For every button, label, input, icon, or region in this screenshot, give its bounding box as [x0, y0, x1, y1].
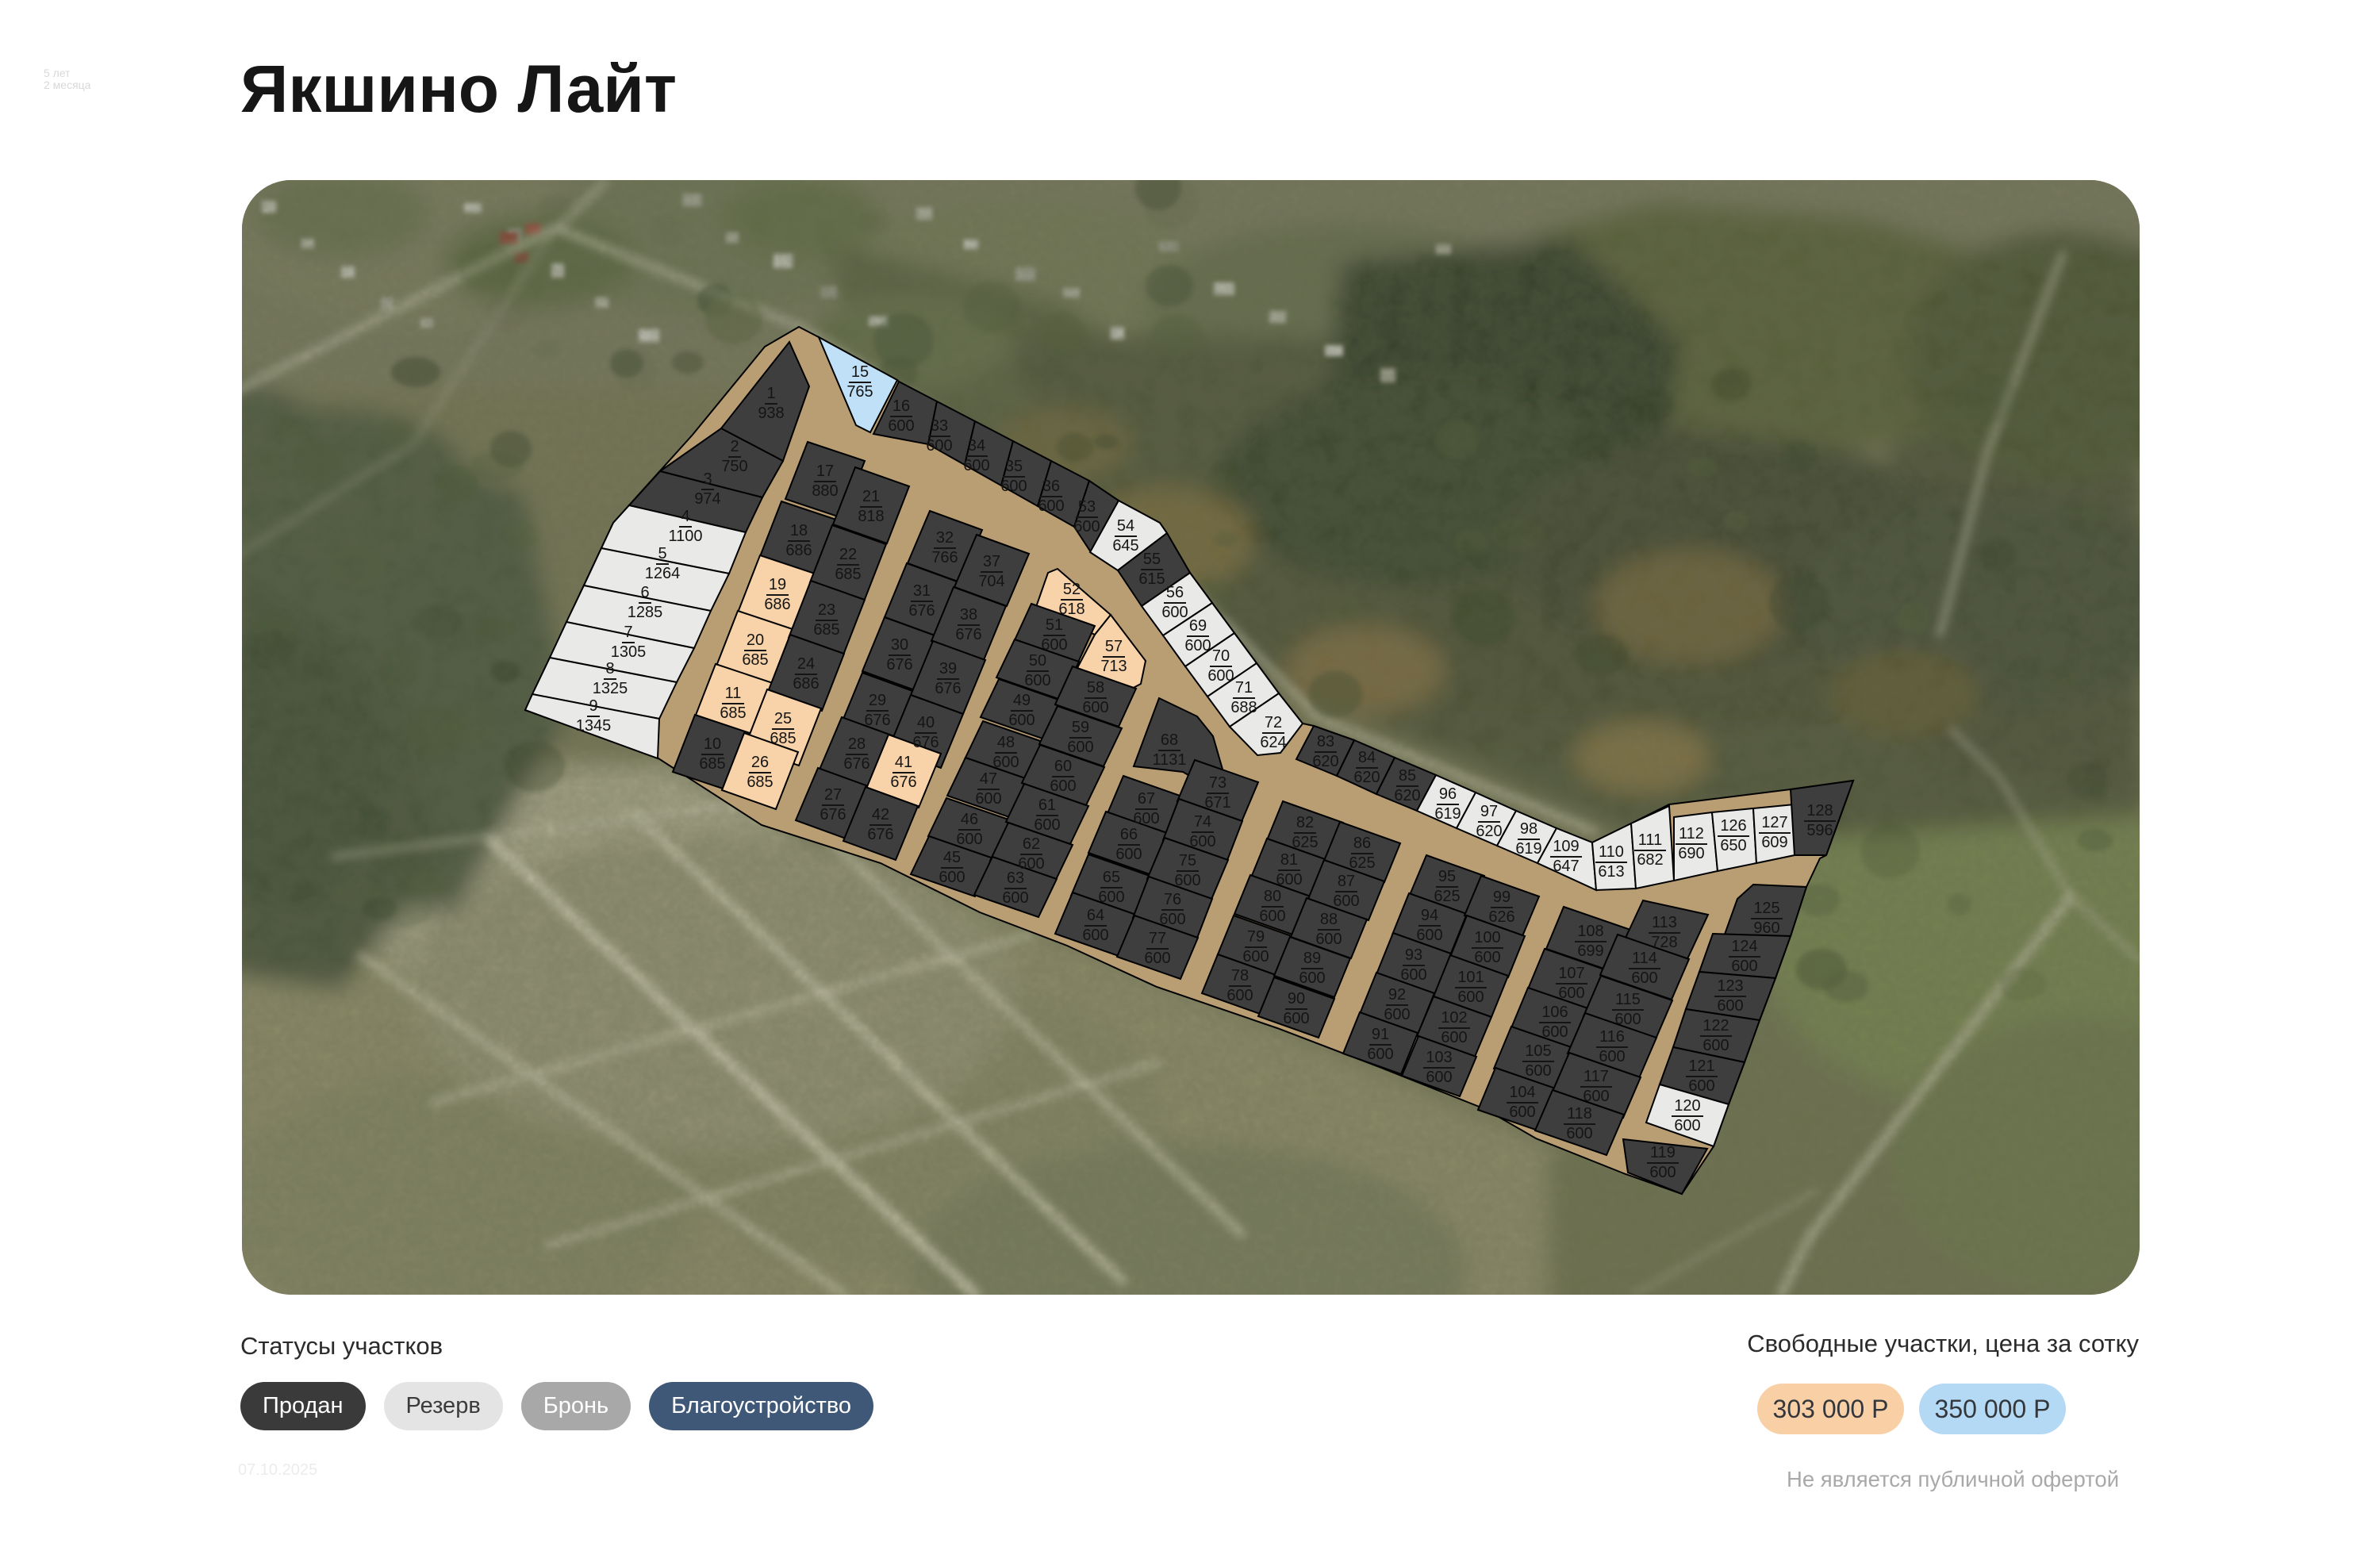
- svg-text:600: 600: [963, 457, 989, 474]
- svg-text:682: 682: [1637, 851, 1663, 869]
- svg-text:625: 625: [1434, 888, 1460, 905]
- svg-text:686: 686: [785, 542, 812, 559]
- svg-text:39: 39: [939, 660, 957, 677]
- svg-text:676: 676: [843, 755, 869, 773]
- svg-text:90: 90: [1288, 990, 1305, 1008]
- svg-text:685: 685: [742, 651, 768, 669]
- svg-text:620: 620: [1394, 787, 1420, 804]
- svg-text:85: 85: [1399, 767, 1416, 785]
- svg-text:600: 600: [1558, 985, 1584, 1002]
- svg-text:626: 626: [1488, 908, 1514, 926]
- svg-text:67: 67: [1138, 790, 1155, 808]
- svg-text:113: 113: [1652, 914, 1677, 931]
- svg-text:620: 620: [1476, 823, 1502, 840]
- svg-text:1: 1: [766, 385, 775, 402]
- svg-text:600: 600: [1674, 1117, 1700, 1134]
- svg-text:600: 600: [1226, 987, 1253, 1004]
- svg-text:87: 87: [1338, 873, 1355, 890]
- svg-text:38: 38: [960, 606, 977, 624]
- svg-text:92: 92: [1388, 986, 1406, 1004]
- svg-text:618: 618: [1058, 601, 1084, 618]
- svg-text:16: 16: [892, 397, 910, 415]
- svg-text:65: 65: [1103, 869, 1120, 886]
- svg-text:22: 22: [839, 546, 857, 563]
- svg-text:624: 624: [1260, 734, 1286, 751]
- svg-text:750: 750: [721, 458, 747, 475]
- svg-text:600: 600: [1207, 667, 1234, 685]
- svg-text:728: 728: [1651, 934, 1677, 951]
- svg-text:54: 54: [1117, 517, 1134, 535]
- svg-text:600: 600: [1050, 777, 1076, 795]
- svg-text:600: 600: [1115, 846, 1142, 863]
- svg-text:600: 600: [1400, 966, 1426, 984]
- svg-text:121: 121: [1688, 1057, 1714, 1075]
- svg-text:650: 650: [1720, 837, 1746, 854]
- svg-text:115: 115: [1615, 991, 1641, 1008]
- svg-text:600: 600: [1583, 1088, 1609, 1105]
- svg-text:105: 105: [1525, 1042, 1551, 1060]
- svg-text:600: 600: [1041, 636, 1067, 654]
- svg-text:71: 71: [1235, 679, 1253, 697]
- svg-text:600: 600: [1457, 988, 1484, 1006]
- svg-text:713: 713: [1100, 658, 1127, 675]
- svg-text:880: 880: [812, 482, 838, 500]
- svg-text:600: 600: [1159, 911, 1185, 928]
- svg-text:676: 676: [935, 680, 961, 697]
- svg-text:600: 600: [1315, 931, 1342, 948]
- svg-text:127: 127: [1761, 814, 1787, 831]
- svg-text:18: 18: [790, 522, 808, 539]
- svg-text:102: 102: [1441, 1009, 1467, 1027]
- svg-text:600: 600: [1073, 518, 1100, 535]
- svg-text:58: 58: [1087, 679, 1104, 697]
- svg-text:86: 86: [1353, 835, 1371, 852]
- svg-text:600: 600: [1034, 816, 1060, 834]
- svg-text:600: 600: [1299, 969, 1325, 987]
- svg-text:88: 88: [1320, 911, 1338, 928]
- svg-text:78: 78: [1231, 967, 1249, 985]
- svg-text:600: 600: [1426, 1069, 1452, 1086]
- svg-text:1264: 1264: [645, 565, 681, 582]
- svg-text:685: 685: [699, 755, 725, 773]
- svg-text:70: 70: [1212, 647, 1230, 665]
- svg-text:600: 600: [1242, 948, 1269, 965]
- svg-text:106: 106: [1541, 1004, 1568, 1021]
- svg-text:82: 82: [1296, 814, 1314, 831]
- svg-text:94: 94: [1421, 907, 1438, 924]
- svg-text:600: 600: [1649, 1164, 1676, 1181]
- svg-text:49: 49: [1013, 692, 1031, 709]
- svg-text:128: 128: [1806, 802, 1833, 819]
- svg-text:600: 600: [1082, 927, 1108, 944]
- svg-text:600: 600: [1509, 1104, 1535, 1121]
- svg-text:117: 117: [1583, 1068, 1609, 1085]
- svg-text:5: 5: [658, 545, 666, 562]
- svg-text:600: 600: [939, 869, 965, 886]
- svg-text:600: 600: [1067, 739, 1093, 756]
- svg-text:938: 938: [758, 405, 784, 422]
- svg-text:619: 619: [1434, 805, 1461, 823]
- svg-text:21: 21: [862, 488, 880, 505]
- svg-text:620: 620: [1312, 753, 1338, 770]
- svg-text:685: 685: [720, 704, 746, 722]
- svg-text:686: 686: [764, 596, 790, 613]
- svg-text:600: 600: [1002, 889, 1028, 907]
- svg-text:676: 676: [912, 734, 939, 751]
- svg-text:17: 17: [816, 463, 834, 480]
- svg-text:600: 600: [1082, 699, 1108, 716]
- svg-text:24: 24: [797, 655, 815, 673]
- svg-text:34: 34: [968, 437, 985, 455]
- svg-text:600: 600: [1599, 1048, 1625, 1065]
- svg-text:676: 676: [890, 773, 916, 791]
- svg-text:676: 676: [908, 602, 935, 620]
- svg-text:960: 960: [1753, 919, 1779, 937]
- svg-text:47: 47: [980, 770, 997, 788]
- svg-text:690: 690: [1678, 845, 1704, 862]
- svg-text:600: 600: [1276, 871, 1302, 889]
- svg-text:600: 600: [1283, 1010, 1309, 1027]
- svg-text:600: 600: [1008, 712, 1035, 729]
- svg-text:103: 103: [1426, 1049, 1452, 1066]
- svg-text:27: 27: [824, 786, 842, 804]
- svg-text:600: 600: [926, 437, 952, 455]
- svg-text:600: 600: [1631, 969, 1657, 987]
- svg-text:818: 818: [858, 508, 884, 525]
- svg-text:6: 6: [640, 584, 649, 601]
- svg-text:120: 120: [1674, 1097, 1700, 1115]
- svg-text:126: 126: [1720, 817, 1746, 835]
- svg-text:766: 766: [931, 549, 958, 566]
- svg-text:10: 10: [704, 735, 721, 753]
- svg-text:7: 7: [624, 624, 632, 641]
- svg-text:600: 600: [1731, 958, 1757, 975]
- svg-text:3: 3: [703, 470, 712, 488]
- svg-text:1285: 1285: [628, 604, 663, 621]
- svg-text:625: 625: [1349, 854, 1375, 872]
- svg-text:125: 125: [1753, 900, 1779, 917]
- svg-text:20: 20: [747, 631, 764, 649]
- svg-text:699: 699: [1577, 942, 1603, 960]
- svg-text:111: 111: [1638, 831, 1662, 849]
- svg-text:600: 600: [1614, 1011, 1641, 1028]
- svg-text:55: 55: [1143, 551, 1161, 568]
- svg-text:685: 685: [813, 621, 839, 639]
- svg-text:685: 685: [770, 730, 796, 747]
- svg-text:676: 676: [820, 806, 846, 823]
- svg-text:59: 59: [1072, 719, 1089, 736]
- svg-text:29: 29: [869, 692, 886, 709]
- svg-text:119: 119: [1650, 1144, 1676, 1161]
- svg-text:122: 122: [1702, 1017, 1729, 1034]
- svg-text:36: 36: [1042, 478, 1060, 495]
- svg-text:600: 600: [1259, 908, 1285, 925]
- svg-text:79: 79: [1247, 928, 1265, 946]
- svg-text:8: 8: [605, 660, 614, 677]
- svg-text:80: 80: [1264, 888, 1281, 905]
- svg-text:600: 600: [1133, 810, 1159, 827]
- svg-text:619: 619: [1515, 840, 1541, 858]
- svg-text:118: 118: [1567, 1105, 1592, 1123]
- svg-text:100: 100: [1474, 929, 1500, 946]
- svg-text:704: 704: [978, 573, 1004, 590]
- svg-text:66: 66: [1120, 826, 1138, 843]
- svg-text:600: 600: [1367, 1046, 1393, 1063]
- svg-text:600: 600: [1333, 892, 1359, 910]
- svg-text:1100: 1100: [668, 528, 702, 545]
- svg-text:676: 676: [955, 626, 981, 643]
- svg-text:75: 75: [1179, 852, 1196, 869]
- svg-text:69: 69: [1189, 617, 1207, 635]
- svg-text:42: 42: [872, 806, 889, 823]
- svg-text:60: 60: [1054, 758, 1072, 775]
- svg-text:28: 28: [848, 735, 866, 753]
- svg-text:686: 686: [793, 675, 819, 693]
- svg-text:625: 625: [1292, 834, 1318, 851]
- svg-text:600: 600: [1184, 637, 1211, 654]
- svg-text:51: 51: [1046, 616, 1063, 634]
- svg-text:93: 93: [1405, 946, 1422, 964]
- svg-text:68: 68: [1161, 731, 1178, 749]
- svg-text:46: 46: [961, 811, 978, 828]
- svg-text:613: 613: [1598, 863, 1624, 881]
- svg-text:620: 620: [1353, 769, 1380, 786]
- svg-text:600: 600: [888, 417, 914, 435]
- svg-text:615: 615: [1138, 570, 1165, 588]
- svg-text:600: 600: [992, 754, 1019, 771]
- svg-text:25: 25: [774, 710, 792, 727]
- svg-text:1131: 1131: [1152, 751, 1186, 769]
- svg-text:600: 600: [1474, 949, 1500, 966]
- svg-text:19: 19: [769, 576, 786, 593]
- svg-text:600: 600: [1144, 950, 1170, 967]
- svg-text:600: 600: [1174, 872, 1200, 889]
- svg-text:50: 50: [1029, 652, 1046, 670]
- svg-text:4: 4: [681, 508, 689, 525]
- svg-text:83: 83: [1317, 733, 1334, 750]
- svg-text:1345: 1345: [576, 717, 612, 735]
- svg-text:600: 600: [1384, 1006, 1410, 1023]
- svg-text:685: 685: [835, 566, 861, 583]
- svg-text:81: 81: [1280, 851, 1298, 869]
- svg-text:26: 26: [751, 754, 769, 771]
- svg-text:600: 600: [1525, 1062, 1551, 1080]
- svg-text:37: 37: [983, 553, 1000, 570]
- svg-text:45: 45: [943, 849, 961, 866]
- svg-text:685: 685: [747, 773, 773, 791]
- svg-text:108: 108: [1577, 923, 1603, 940]
- svg-text:101: 101: [1457, 969, 1484, 986]
- svg-text:84: 84: [1358, 749, 1376, 766]
- svg-text:671: 671: [1204, 794, 1230, 812]
- svg-text:96: 96: [1439, 785, 1457, 803]
- svg-text:116: 116: [1599, 1028, 1625, 1046]
- svg-text:2: 2: [730, 438, 739, 455]
- svg-text:647: 647: [1553, 858, 1579, 875]
- svg-text:600: 600: [975, 790, 1001, 808]
- svg-text:123: 123: [1717, 977, 1743, 995]
- svg-text:600: 600: [1024, 672, 1050, 689]
- svg-text:48: 48: [997, 734, 1015, 751]
- svg-text:110: 110: [1599, 843, 1624, 861]
- svg-text:676: 676: [886, 656, 912, 674]
- svg-text:112: 112: [1679, 825, 1704, 843]
- svg-text:688: 688: [1230, 699, 1257, 716]
- svg-text:600: 600: [1541, 1023, 1568, 1041]
- svg-text:1325: 1325: [593, 680, 628, 697]
- svg-text:33: 33: [931, 417, 948, 435]
- svg-text:73: 73: [1209, 774, 1226, 792]
- svg-text:596: 596: [1806, 822, 1833, 839]
- svg-text:77: 77: [1149, 930, 1166, 947]
- svg-text:32: 32: [936, 529, 954, 547]
- svg-text:11: 11: [725, 685, 742, 702]
- svg-text:104: 104: [1509, 1084, 1535, 1101]
- svg-text:676: 676: [867, 826, 893, 843]
- svg-text:31: 31: [913, 582, 931, 600]
- svg-text:41: 41: [895, 754, 912, 771]
- svg-text:76: 76: [1164, 891, 1181, 908]
- svg-text:600: 600: [1189, 833, 1215, 850]
- svg-text:609: 609: [1761, 834, 1787, 851]
- svg-text:124: 124: [1731, 938, 1757, 955]
- svg-text:600: 600: [1441, 1029, 1467, 1046]
- svg-text:64: 64: [1087, 907, 1104, 924]
- svg-text:74: 74: [1194, 813, 1211, 831]
- svg-text:61: 61: [1038, 796, 1056, 814]
- svg-text:600: 600: [1717, 997, 1743, 1015]
- svg-text:9: 9: [589, 697, 597, 715]
- svg-text:35: 35: [1005, 458, 1023, 475]
- svg-text:91: 91: [1372, 1026, 1389, 1043]
- svg-text:645: 645: [1112, 537, 1138, 555]
- svg-text:52: 52: [1063, 581, 1081, 598]
- svg-text:23: 23: [818, 601, 835, 619]
- svg-text:98: 98: [1520, 820, 1537, 838]
- svg-text:600: 600: [1688, 1077, 1714, 1095]
- svg-text:99: 99: [1493, 889, 1511, 906]
- svg-text:89: 89: [1303, 950, 1321, 967]
- svg-text:600: 600: [1098, 889, 1124, 906]
- svg-text:63: 63: [1007, 869, 1024, 887]
- svg-text:15: 15: [851, 363, 869, 381]
- svg-text:30: 30: [891, 636, 908, 654]
- svg-text:53: 53: [1078, 498, 1096, 516]
- svg-text:114: 114: [1632, 950, 1657, 967]
- svg-text:765: 765: [846, 383, 873, 401]
- svg-text:600: 600: [1566, 1125, 1592, 1142]
- svg-text:40: 40: [917, 714, 935, 731]
- svg-text:974: 974: [694, 490, 720, 508]
- svg-text:62: 62: [1023, 835, 1040, 853]
- svg-text:1305: 1305: [611, 643, 647, 661]
- svg-text:600: 600: [1161, 604, 1188, 621]
- svg-text:600: 600: [956, 831, 982, 848]
- svg-text:600: 600: [1702, 1037, 1729, 1054]
- svg-text:600: 600: [1416, 927, 1442, 944]
- svg-text:97: 97: [1480, 803, 1498, 820]
- svg-text:57: 57: [1105, 638, 1123, 655]
- svg-text:95: 95: [1438, 868, 1456, 885]
- svg-text:600: 600: [1038, 497, 1064, 515]
- svg-text:676: 676: [864, 712, 890, 729]
- svg-text:107: 107: [1558, 965, 1584, 982]
- svg-text:600: 600: [1000, 478, 1027, 495]
- svg-text:72: 72: [1265, 714, 1282, 731]
- svg-text:109: 109: [1553, 838, 1579, 855]
- svg-text:56: 56: [1166, 584, 1184, 601]
